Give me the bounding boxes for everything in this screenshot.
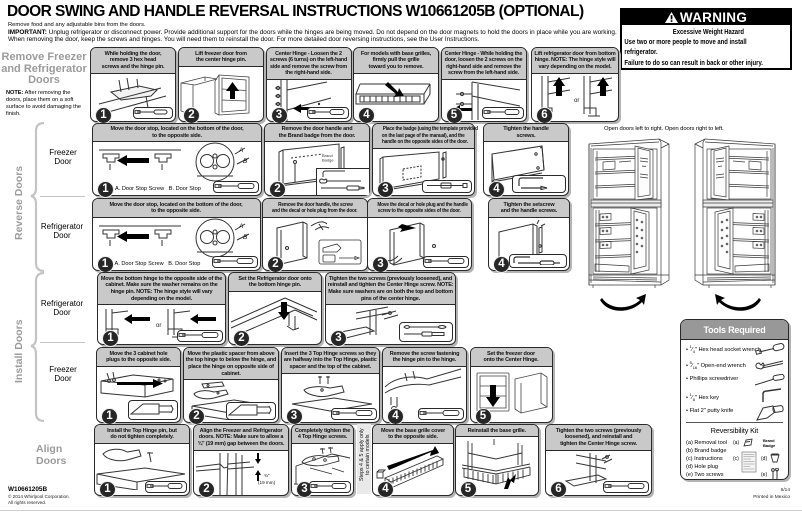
svg-text:A: A: [238, 223, 243, 230]
svg-text:B: B: [243, 234, 248, 241]
svg-text:¾": ¾": [264, 473, 270, 478]
svg-text:or: or: [156, 323, 161, 329]
svg-text:B: B: [243, 158, 248, 165]
svg-text:or: or: [574, 98, 579, 104]
svg-text:Badge: Badge: [322, 158, 334, 163]
svg-text:A: A: [238, 147, 243, 154]
svg-text:(19 mm): (19 mm): [258, 480, 276, 485]
